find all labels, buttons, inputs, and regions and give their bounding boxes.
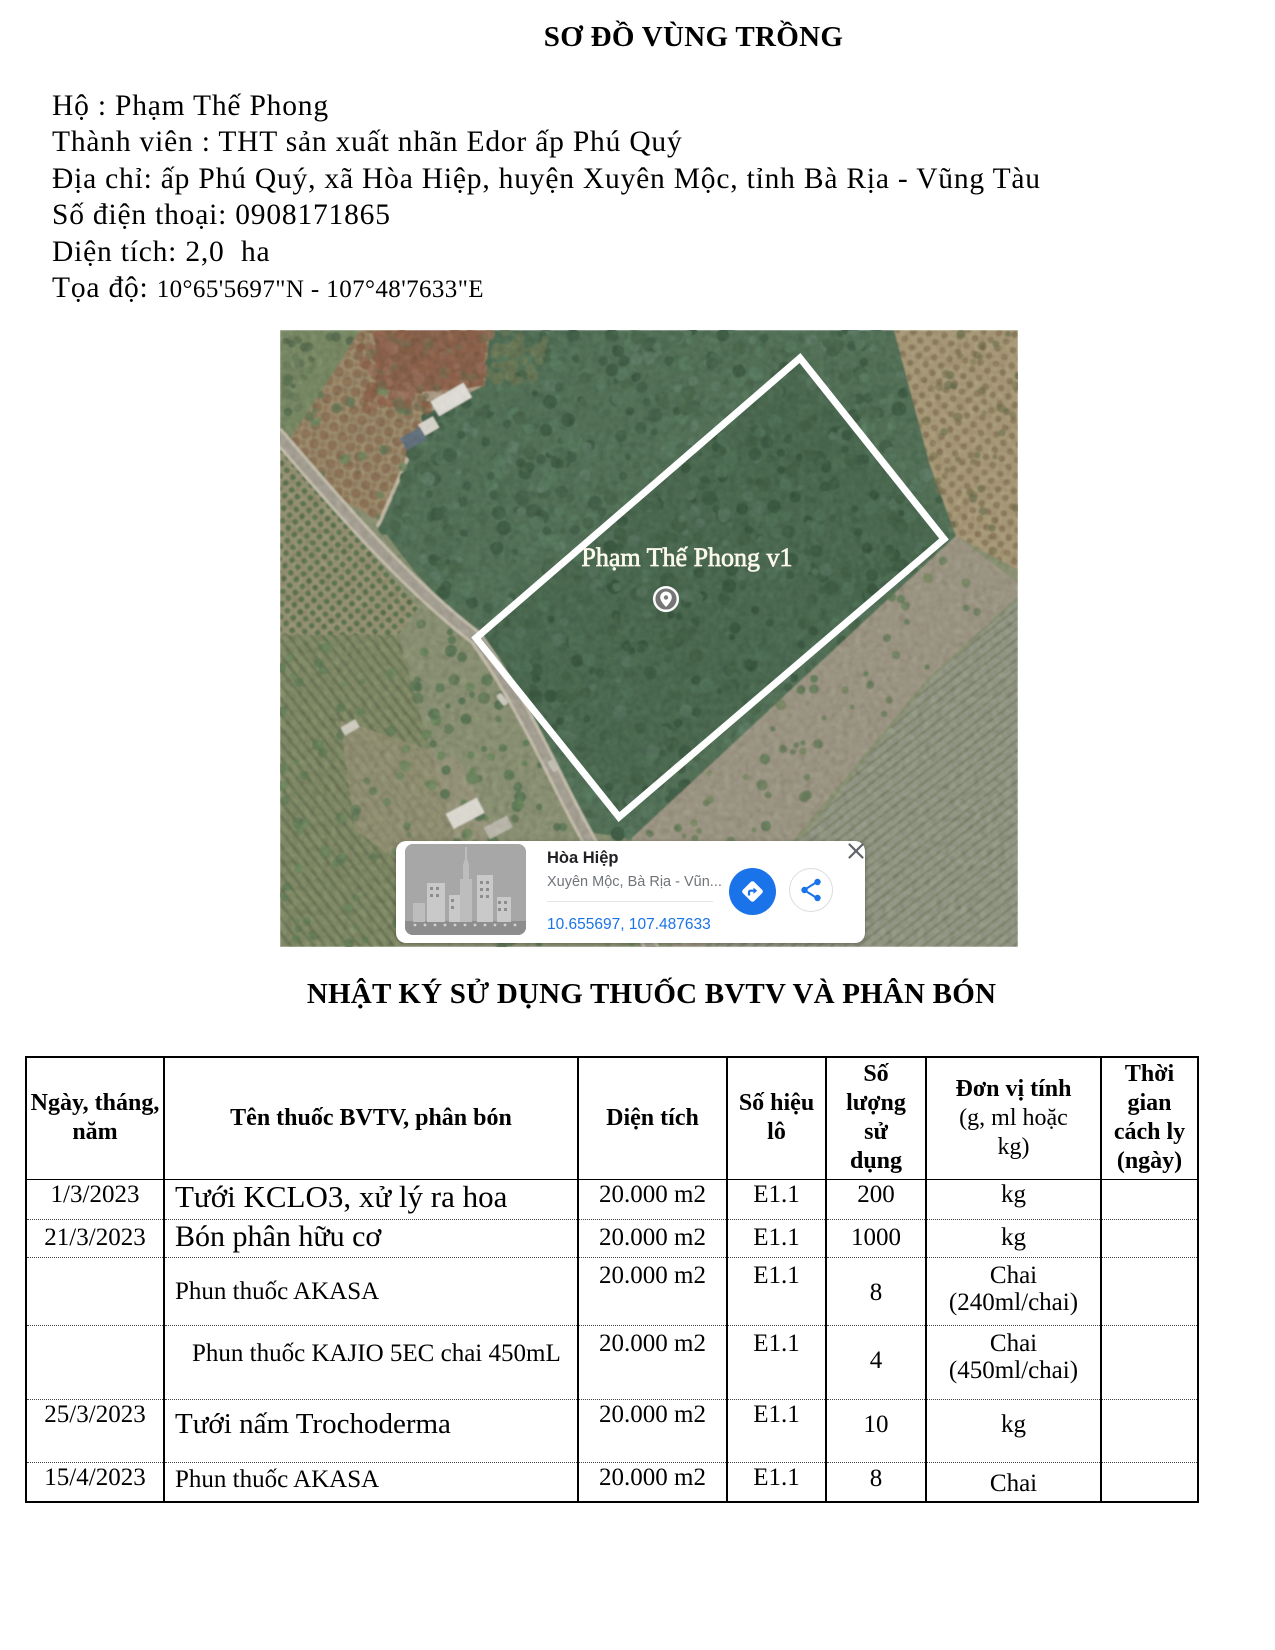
svg-text:Phạm Thế Phong v1: Phạm Thế Phong v1 [581,543,792,572]
